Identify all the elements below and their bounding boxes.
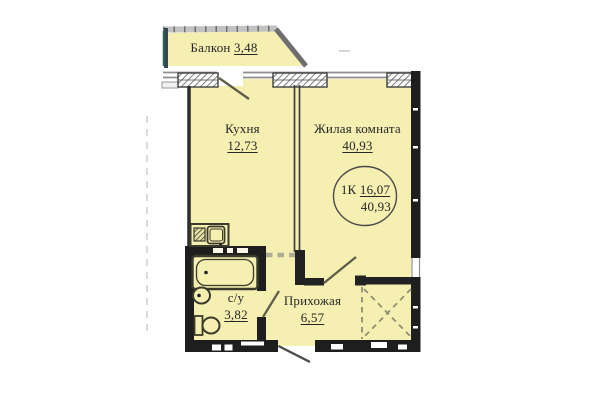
hallway-area: 6,57 [301,310,325,325]
stamp-total-area: 40,93 [361,199,391,214]
balcony-name: Балкон [190,40,230,55]
stamp-type: 1К [341,182,357,197]
window-living-left [273,73,327,87]
entrance-door-swing [279,346,311,362]
hallway-label: Прихожая 6,57 [274,293,351,326]
floorplan-drawing [0,0,600,400]
living-label: Жилая комната 40,93 [299,121,416,154]
bathtub [193,256,258,289]
window-living-right [387,73,414,87]
hallway-name: Прихожая [274,293,351,310]
right-wall [411,71,421,352]
bathroom-name: с/у [214,290,258,307]
living-name: Жилая комната [299,121,416,138]
kitchen-area: 12,73 [227,138,257,153]
stamp-label: 1К 16,07 40,93 [334,182,397,215]
kitchen-name: Кухня [195,121,290,138]
bottom-wall-left [185,340,278,352]
balcony-label: Балкон 3,48 [172,40,276,57]
bottom-wall-right [315,340,418,352]
kitchen-sink [191,224,229,246]
stamp-living-area: 16,07 [360,182,390,197]
stove-hatch [194,228,205,241]
kitchen-label: Кухня 12,73 [195,121,290,154]
wall-stub [162,82,178,88]
balcony-area: 3,48 [234,40,258,55]
bathroom-label: с/у 3,82 [214,290,258,323]
living-area: 40,93 [342,138,372,153]
wash-sink [193,288,210,304]
window-kitchen [178,73,218,87]
bathroom-area: 3,82 [224,307,248,322]
floorplan-canvas: Балкон 3,48 Кухня 12,73 Жилая комната 40… [0,0,600,400]
